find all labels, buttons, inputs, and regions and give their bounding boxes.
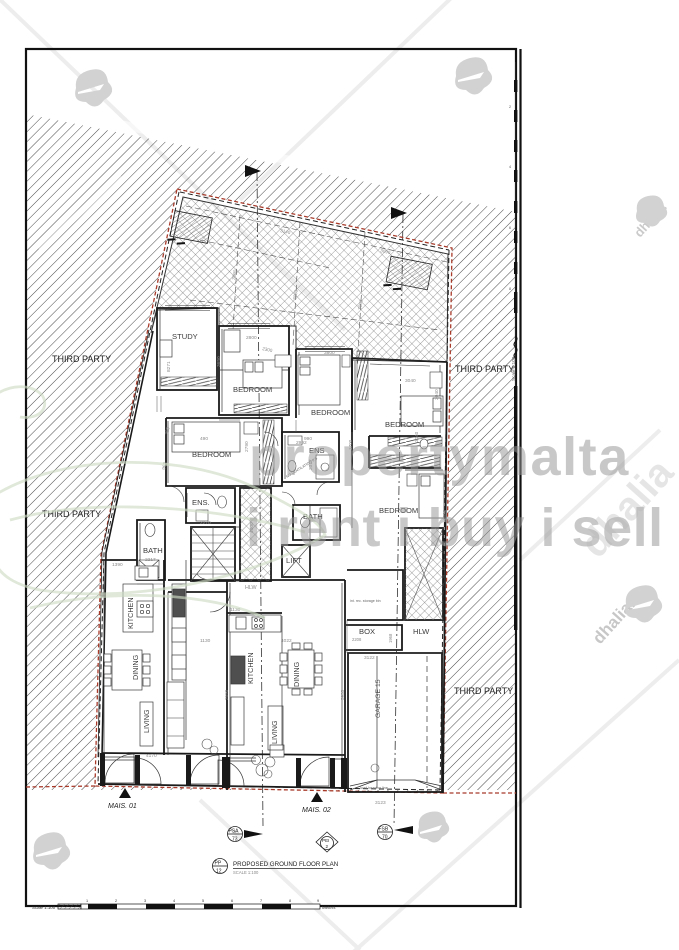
svg-text:3123: 3123 <box>375 800 386 806</box>
svg-text:PP: PP <box>215 861 222 867</box>
svg-text:2270: 2270 <box>200 520 211 526</box>
svg-text:3122: 3122 <box>364 655 375 661</box>
svg-text:SCALE 1:100: SCALE 1:100 <box>233 870 259 875</box>
svg-text:BEDROOM: BEDROOM <box>192 450 231 459</box>
svg-text:8271: 8271 <box>166 361 172 372</box>
svg-text:2: 2 <box>509 105 511 109</box>
svg-text:380: 380 <box>164 426 171 435</box>
svg-text:2: 2 <box>115 899 117 903</box>
svg-text:4: 4 <box>173 899 175 903</box>
svg-text:GARAGE 15: GARAGE 15 <box>375 679 382 718</box>
svg-text:PSA: PSA <box>229 829 240 835</box>
svg-text:PEI: PEI <box>322 838 329 843</box>
svg-text:4022: 4022 <box>281 638 292 644</box>
svg-text:8: 8 <box>509 287 511 291</box>
svg-text:DINING: DINING <box>131 654 140 680</box>
svg-text:load bearing line: load bearing line <box>360 786 388 790</box>
svg-text:3800: 3800 <box>324 350 335 356</box>
svg-text:2: 2 <box>326 844 329 849</box>
svg-text:2800: 2800 <box>246 335 257 341</box>
svg-text:Scale 1:100: Scale 1:100 <box>32 905 56 910</box>
svg-text:HLW: HLW <box>413 627 430 636</box>
svg-text:6: 6 <box>231 899 233 903</box>
svg-text:9: 9 <box>317 899 319 903</box>
svg-text:BEDROOM: BEDROOM <box>311 408 350 417</box>
svg-text:MAIS. 02: MAIS. 02 <box>302 807 331 814</box>
svg-text:490: 490 <box>200 436 208 442</box>
svg-text:3040: 3040 <box>405 378 416 384</box>
svg-text:STUDY: STUDY <box>172 332 198 341</box>
svg-text:BEDROOM: BEDROOM <box>233 385 272 394</box>
svg-text:6: 6 <box>509 226 511 230</box>
svg-text:BOX: BOX <box>359 627 375 636</box>
svg-text:THIRD PARTY: THIRD PARTY <box>454 686 513 696</box>
svg-text:KITCHEN: KITCHEN <box>246 652 255 684</box>
svg-text:4170: 4170 <box>146 753 157 759</box>
svg-text:2690: 2690 <box>224 689 229 700</box>
svg-text:THIRD PARTY: THIRD PARTY <box>52 354 111 364</box>
svg-text:propertymalta: propertymalta <box>249 427 630 487</box>
svg-text:LIVING: LIVING <box>270 720 279 744</box>
svg-text:1390: 1390 <box>112 562 123 568</box>
svg-text:1: 1 <box>86 899 88 903</box>
svg-text:70: 70 <box>382 835 388 841</box>
svg-text:2300: 2300 <box>262 346 273 353</box>
svg-text:ENS.: ENS. <box>192 498 210 507</box>
svg-text:73: 73 <box>232 837 238 843</box>
svg-text:3040: 3040 <box>434 389 440 400</box>
svg-text:THIRD PARTY: THIRD PARTY <box>455 364 514 374</box>
svg-text:int. rec. storage bin: int. rec. storage bin <box>350 599 381 603</box>
svg-text:PROPOSED GROUND FLOOR PLAN: PROPOSED GROUND FLOOR PLAN <box>233 861 338 868</box>
svg-text:FSB: FSB <box>379 827 389 833</box>
svg-text:12: 12 <box>216 869 222 875</box>
svg-text:5935: 5935 <box>340 689 345 700</box>
svg-text:1968: 1968 <box>388 633 393 643</box>
svg-text:2217: 2217 <box>145 557 156 563</box>
svg-text:2208: 2208 <box>352 637 362 642</box>
svg-text:7: 7 <box>260 899 262 903</box>
svg-text:LIVING: LIVING <box>142 709 151 733</box>
svg-text:3650: 3650 <box>216 356 222 367</box>
svg-text:HLW: HLW <box>245 585 257 591</box>
svg-text:DINING: DINING <box>292 661 301 687</box>
svg-text:4: 4 <box>509 165 511 169</box>
svg-text:Meters: Meters <box>322 905 336 910</box>
svg-text:5: 5 <box>202 899 204 903</box>
svg-text:8: 8 <box>289 899 291 903</box>
svg-text:3: 3 <box>144 899 146 903</box>
svg-text:KITCHEN: KITCHEN <box>126 597 135 629</box>
svg-text:1130: 1130 <box>200 638 211 644</box>
svg-text:BATH: BATH <box>143 546 163 555</box>
svg-text:MAIS. 01: MAIS. 01 <box>108 803 137 810</box>
